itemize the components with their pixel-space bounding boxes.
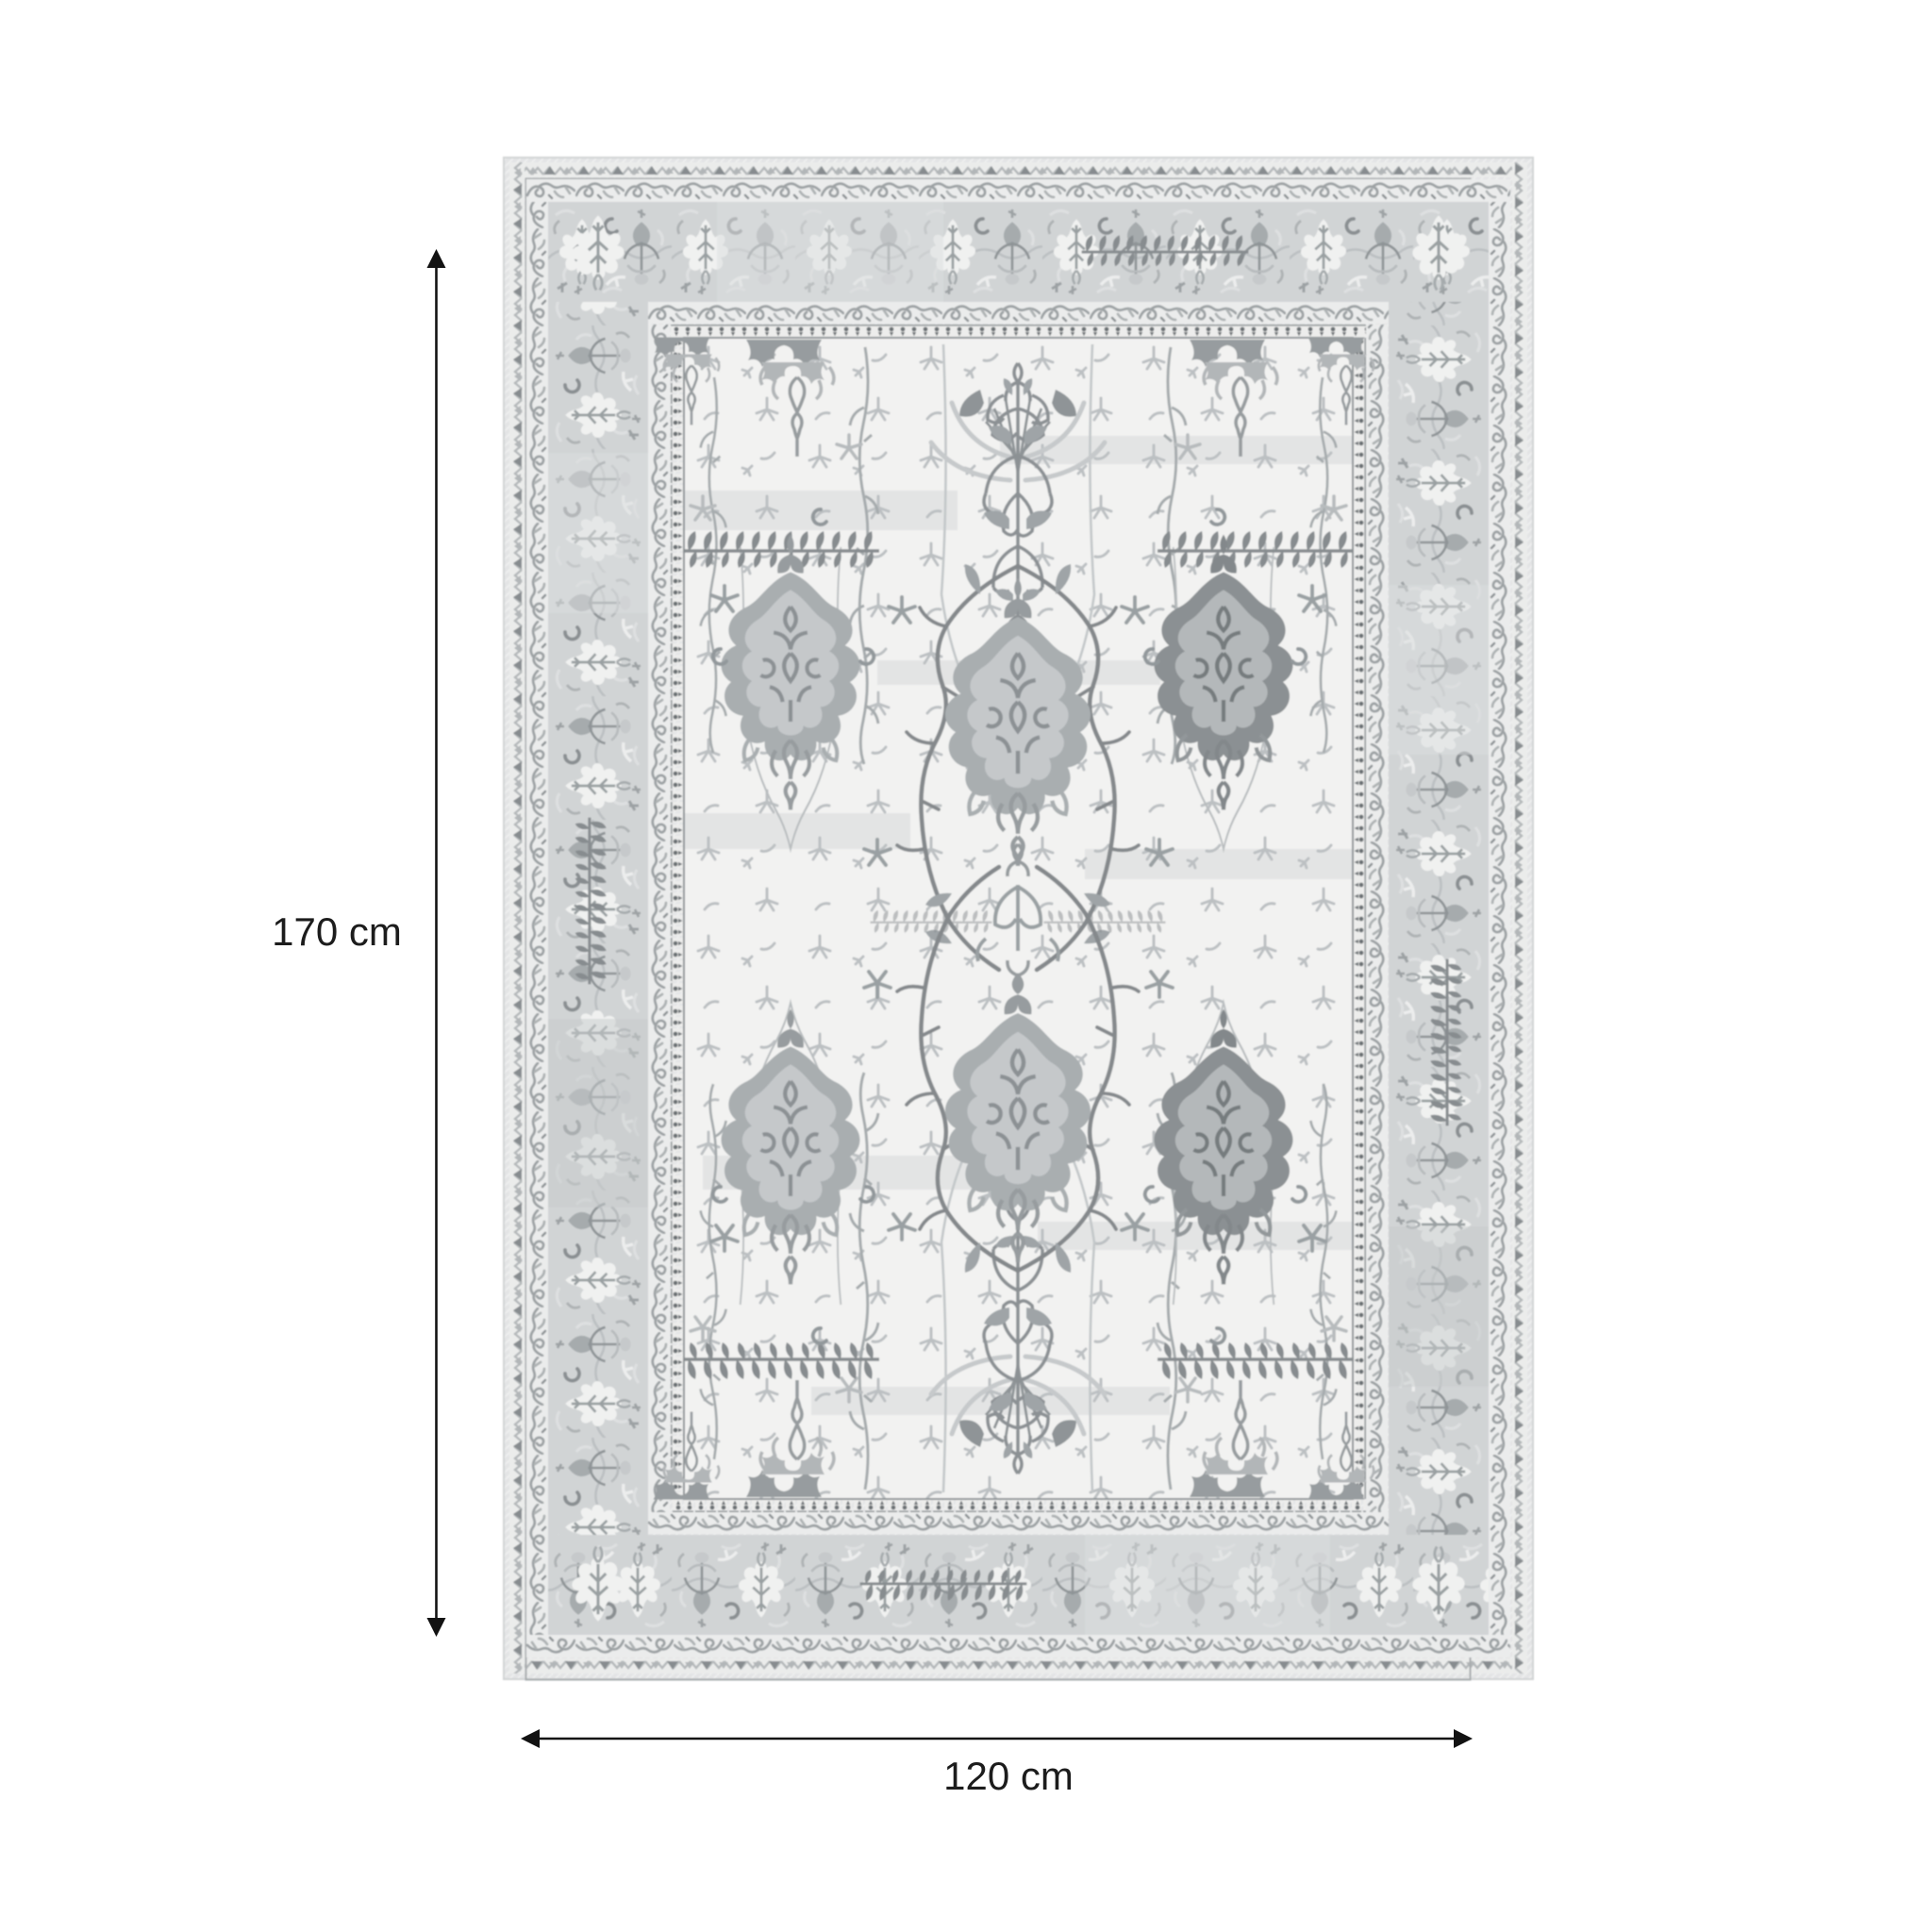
svg-text:170 cm: 170 cm: [272, 909, 402, 954]
svg-text:120 cm: 120 cm: [943, 1754, 1074, 1798]
